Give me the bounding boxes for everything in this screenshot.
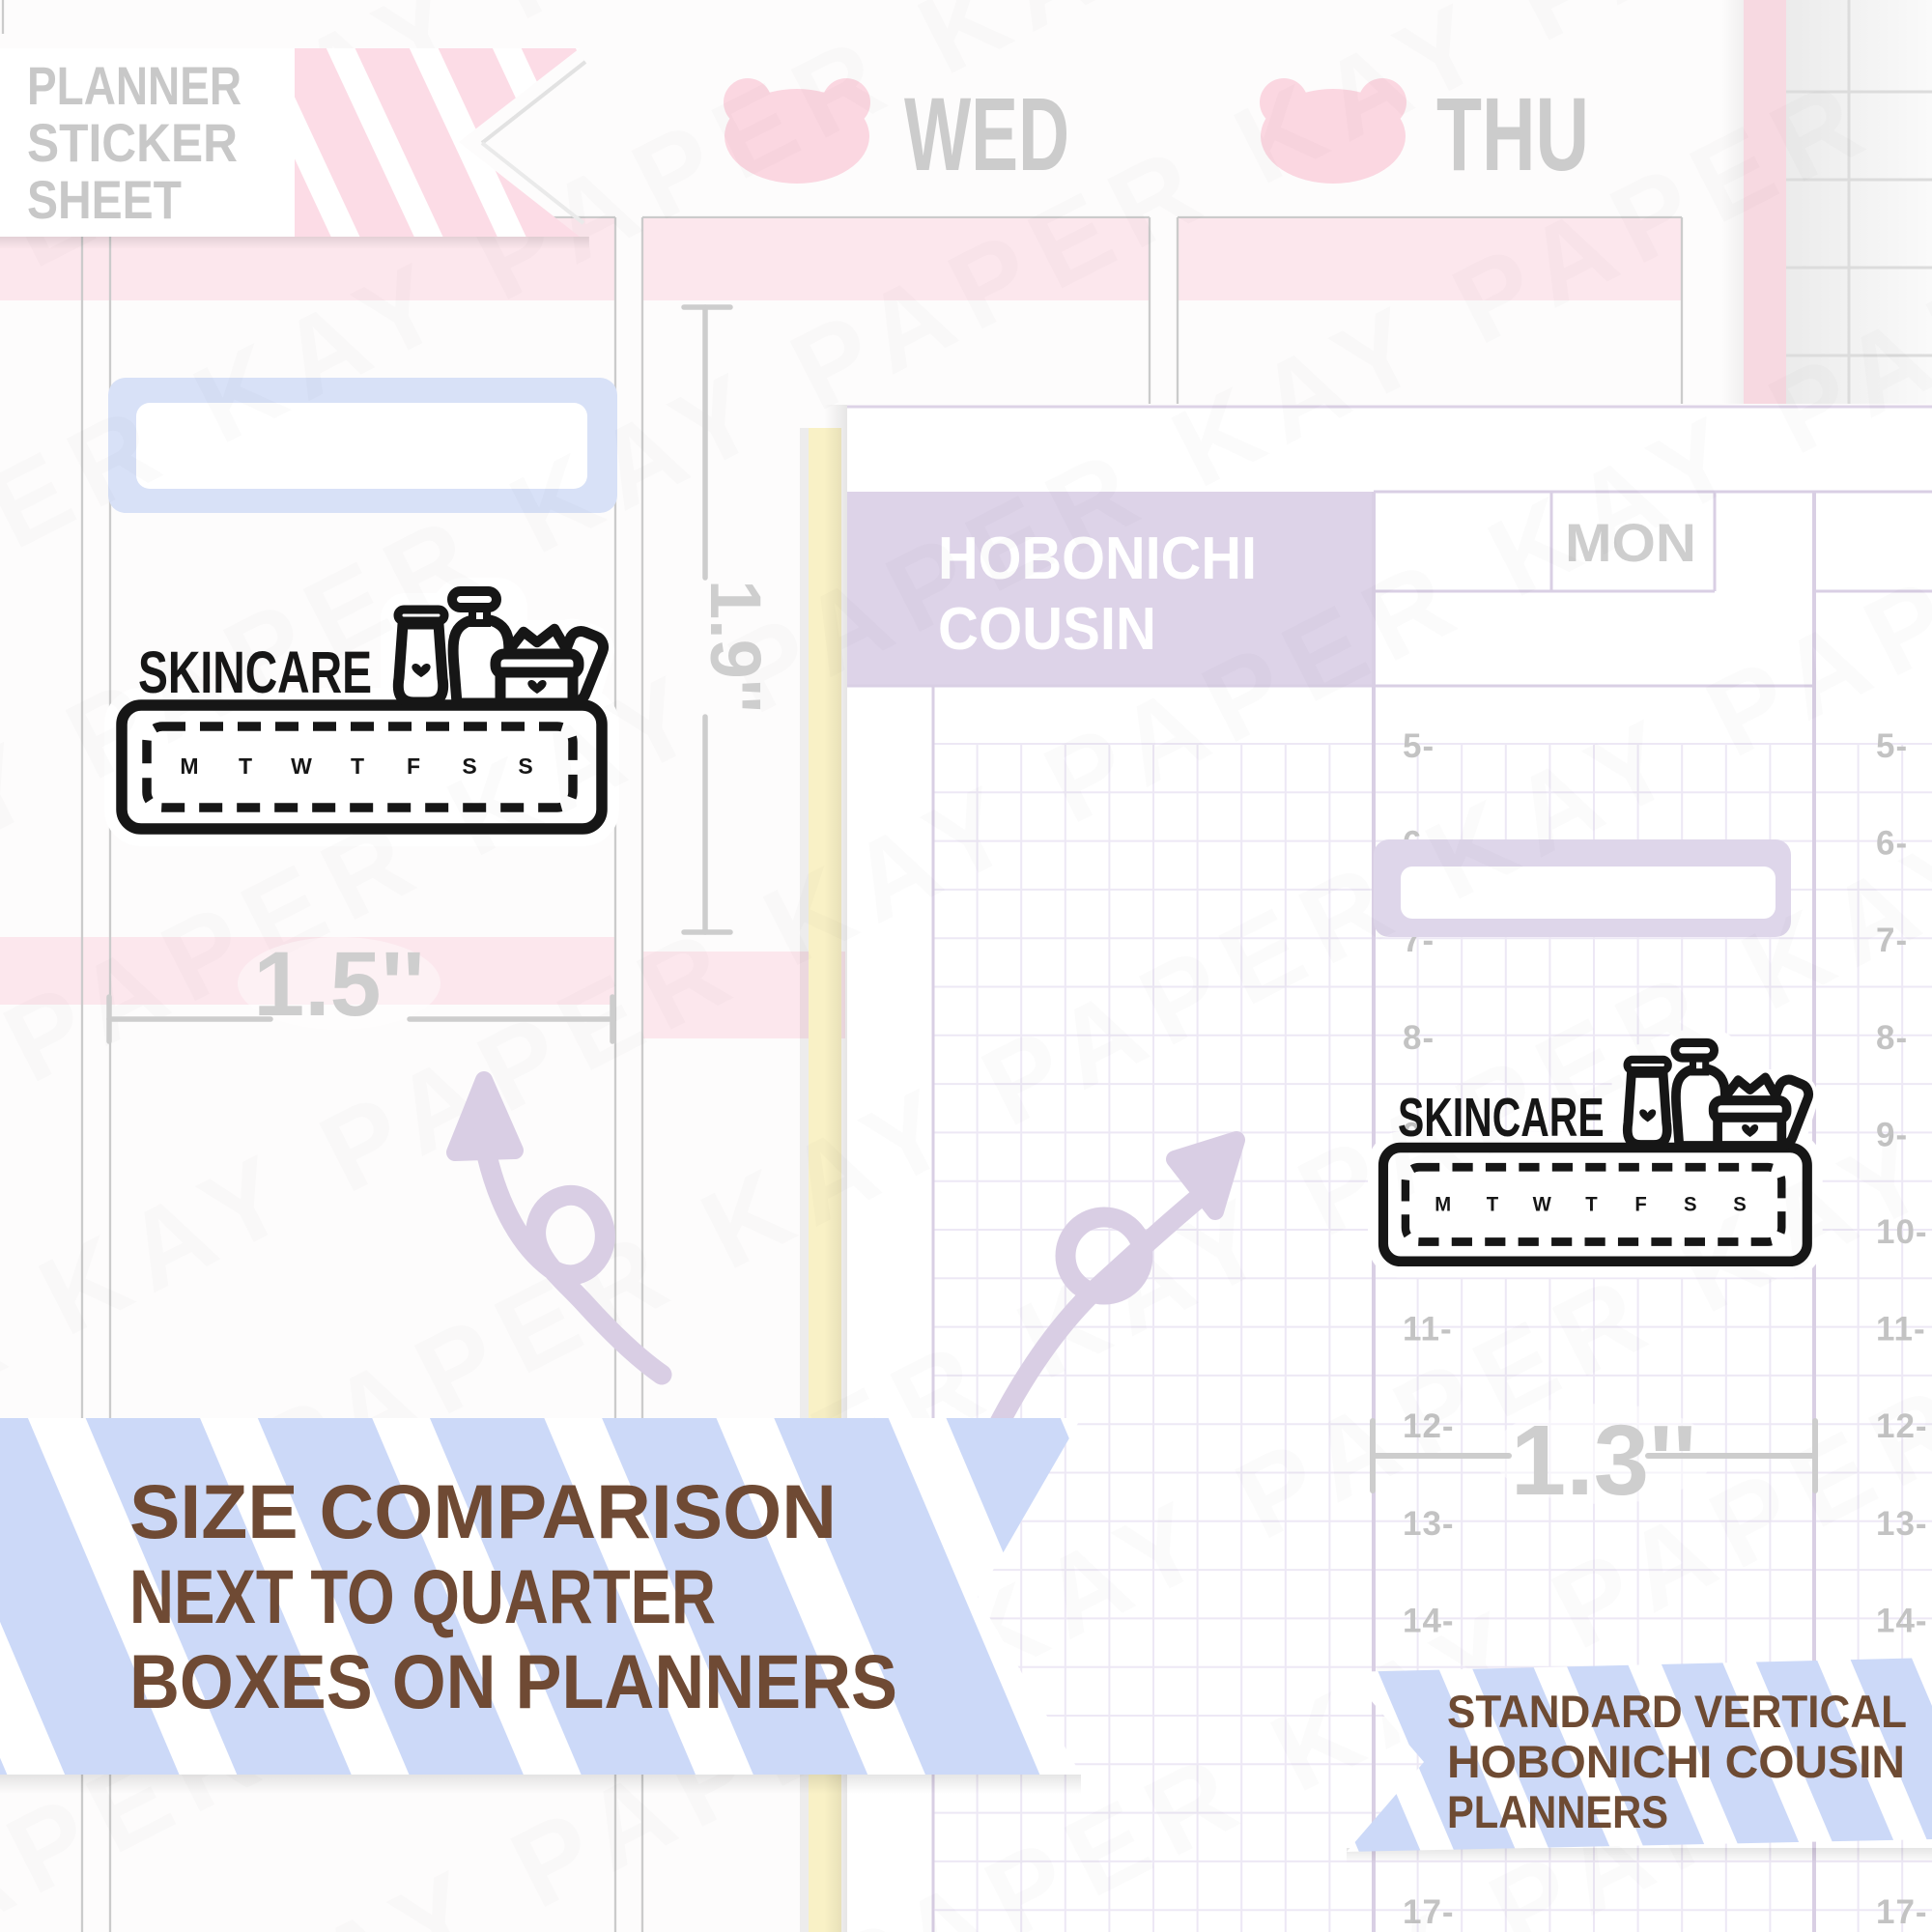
- svg-text:1.9'': 1.9'': [696, 580, 776, 713]
- svg-text:1.5'': 1.5'': [253, 933, 424, 1036]
- svg-text:SHEET: SHEET: [27, 169, 182, 230]
- svg-text:HOBONICHI COUSIN: HOBONICHI COUSIN: [1447, 1736, 1905, 1787]
- svg-text:BOXES ON PLANNERS: BOXES ON PLANNERS: [129, 1638, 897, 1724]
- svg-text:NEXT TO QUARTER: NEXT TO QUARTER: [129, 1553, 716, 1639]
- svg-text:STANDARD VERTICAL: STANDARD VERTICAL: [1447, 1686, 1907, 1737]
- svg-text:1.3'': 1.3'': [1511, 1405, 1696, 1516]
- svg-text:8-: 8-: [1876, 1019, 1908, 1057]
- svg-text:T: T: [239, 753, 252, 779]
- svg-text:W: W: [291, 753, 312, 779]
- svg-text:5-: 5-: [1403, 727, 1435, 765]
- svg-text:14-: 14-: [1876, 1602, 1928, 1639]
- svg-text:13-: 13-: [1403, 1505, 1455, 1543]
- svg-text:PLANNER: PLANNER: [27, 55, 241, 116]
- svg-text:STICKER: STICKER: [27, 112, 238, 173]
- svg-text:8-: 8-: [1403, 1019, 1435, 1057]
- svg-text:PLANNERS: PLANNERS: [1447, 1786, 1668, 1837]
- svg-text:11-: 11-: [1876, 1311, 1926, 1349]
- svg-text:T: T: [351, 753, 364, 779]
- svg-text:SIZE COMPARISON: SIZE COMPARISON: [129, 1468, 837, 1554]
- svg-text:5-: 5-: [1876, 727, 1908, 765]
